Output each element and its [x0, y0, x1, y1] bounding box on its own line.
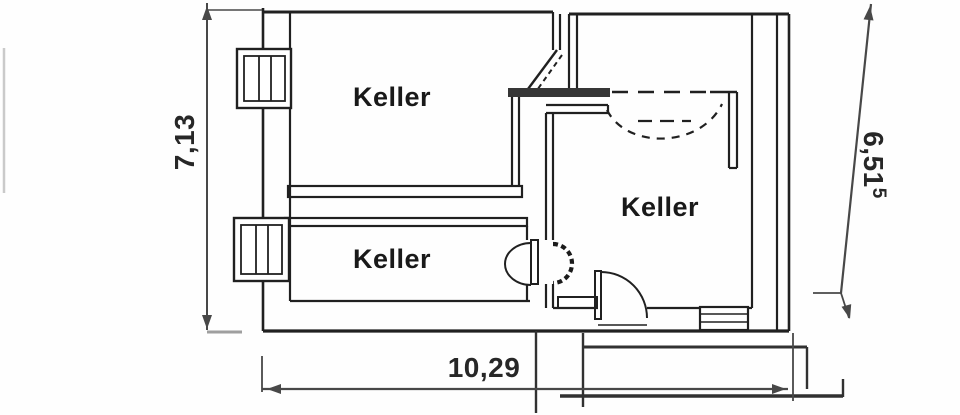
building-outer-walls: [263, 8, 789, 331]
door-middle: [505, 240, 572, 285]
arrowhead-left: [267, 384, 281, 394]
door-half-round: [553, 244, 572, 283]
exterior-stair-lines: [536, 331, 843, 413]
scanned-floorplan-page: 7,13 10,29 6,515 Keller Keller Keller: [0, 0, 960, 415]
door-bottom: [595, 271, 647, 319]
window-symbol-bottom: [700, 307, 748, 330]
arrowhead-down: [202, 315, 212, 329]
door-swing-arc: [505, 243, 531, 285]
door-leaf: [531, 240, 538, 284]
dimension-left-label: 7,13: [169, 114, 200, 171]
dimension-text-right-superscript: 5: [868, 188, 889, 199]
dimension-text-left: 7,13: [169, 114, 200, 171]
dimension-bottom: [262, 333, 793, 401]
arrowhead-right: [772, 384, 786, 394]
window-symbol-upper-left: [237, 49, 291, 108]
arrowhead-up: [202, 6, 212, 20]
floor-plan-svg: 7,13 10,29 6,515 Keller Keller Keller: [0, 0, 960, 415]
dimension-text-right: 6,51: [858, 131, 889, 188]
room-label-keller-right: Keller: [621, 192, 699, 222]
scan-layer: 7,13 10,29 6,515 Keller Keller Keller: [0, 0, 960, 415]
chamfer-wall: [528, 50, 557, 89]
vestibule-walls: [528, 12, 577, 93]
door-swing-arc: [601, 272, 647, 318]
svg-text:6,515: 6,515: [858, 131, 889, 199]
dimension-text-bottom: 10,29: [448, 352, 521, 383]
arrowhead-up: [864, 5, 875, 20]
door-leaf: [595, 271, 601, 319]
vestibule-solid-band: [508, 88, 610, 97]
window-symbol-lower-left: [234, 218, 289, 281]
room-label-keller-top-left: Keller: [353, 82, 431, 112]
dashed-arch-opening: [607, 92, 737, 139]
room-label-keller-bottom-left: Keller: [353, 244, 431, 274]
dimension-right-label: 6,515: [858, 131, 889, 199]
